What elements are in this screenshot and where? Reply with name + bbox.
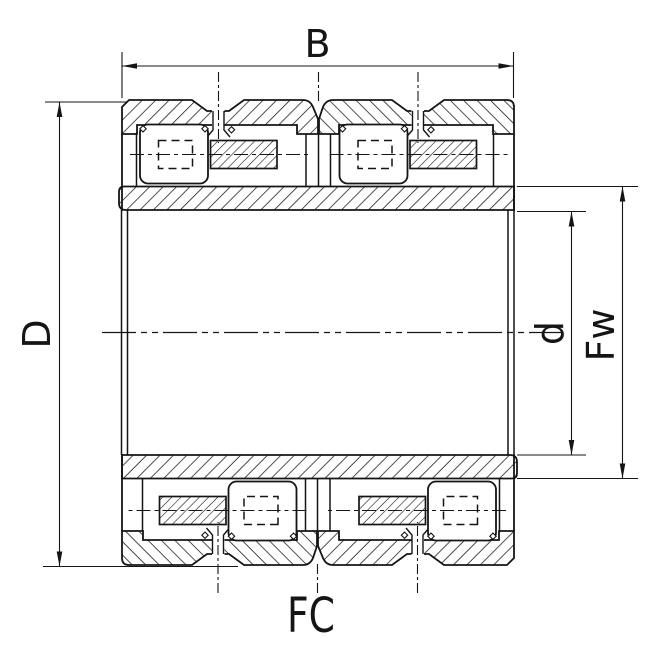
arrowhead	[569, 440, 575, 455]
dimension-label-Fw: Fw	[579, 309, 623, 362]
arrowhead	[57, 552, 63, 567]
arrowhead	[122, 63, 137, 69]
bearing-drawing-canvas: B D d Fw FC	[0, 0, 668, 652]
bearing-cross-section-drawing: B D d Fw FC	[0, 0, 668, 652]
arrowhead	[620, 187, 626, 202]
arrowhead	[620, 464, 626, 479]
arrowhead	[57, 102, 63, 117]
arrowhead	[569, 212, 575, 227]
dimension-d: d	[517, 212, 586, 456]
arrowhead	[499, 63, 514, 69]
dimension-label-d: d	[528, 321, 572, 345]
dimension-label-B: B	[304, 22, 330, 66]
part-code-label: FC	[287, 588, 335, 644]
bearing-bottom-half	[122, 454, 517, 593]
bearing-top-half	[119, 72, 514, 211]
dimension-label-D: D	[15, 319, 59, 348]
dimension-B: B	[122, 22, 514, 98]
